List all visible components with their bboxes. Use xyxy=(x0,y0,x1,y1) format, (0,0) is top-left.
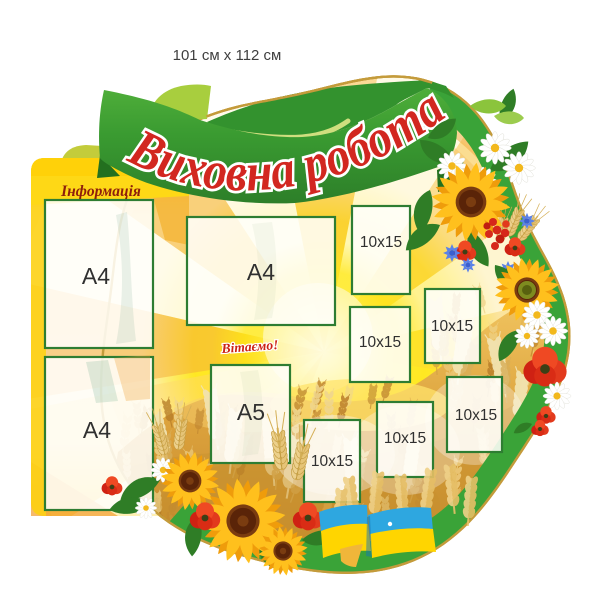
svg-text:A4: A4 xyxy=(83,417,111,443)
svg-text:101 см x 112 см: 101 см x 112 см xyxy=(173,47,282,64)
svg-text:Інформація: Інформація xyxy=(60,183,141,200)
svg-text:A4: A4 xyxy=(82,263,110,289)
svg-text:10x15: 10x15 xyxy=(384,430,426,447)
svg-text:10x15: 10x15 xyxy=(359,334,401,351)
svg-text:A4: A4 xyxy=(247,259,275,285)
svg-text:A5: A5 xyxy=(237,399,265,425)
svg-text:10x15: 10x15 xyxy=(455,407,497,424)
svg-text:10x15: 10x15 xyxy=(311,453,353,470)
svg-text:10x15: 10x15 xyxy=(360,234,402,251)
svg-text:10x15: 10x15 xyxy=(431,318,473,335)
